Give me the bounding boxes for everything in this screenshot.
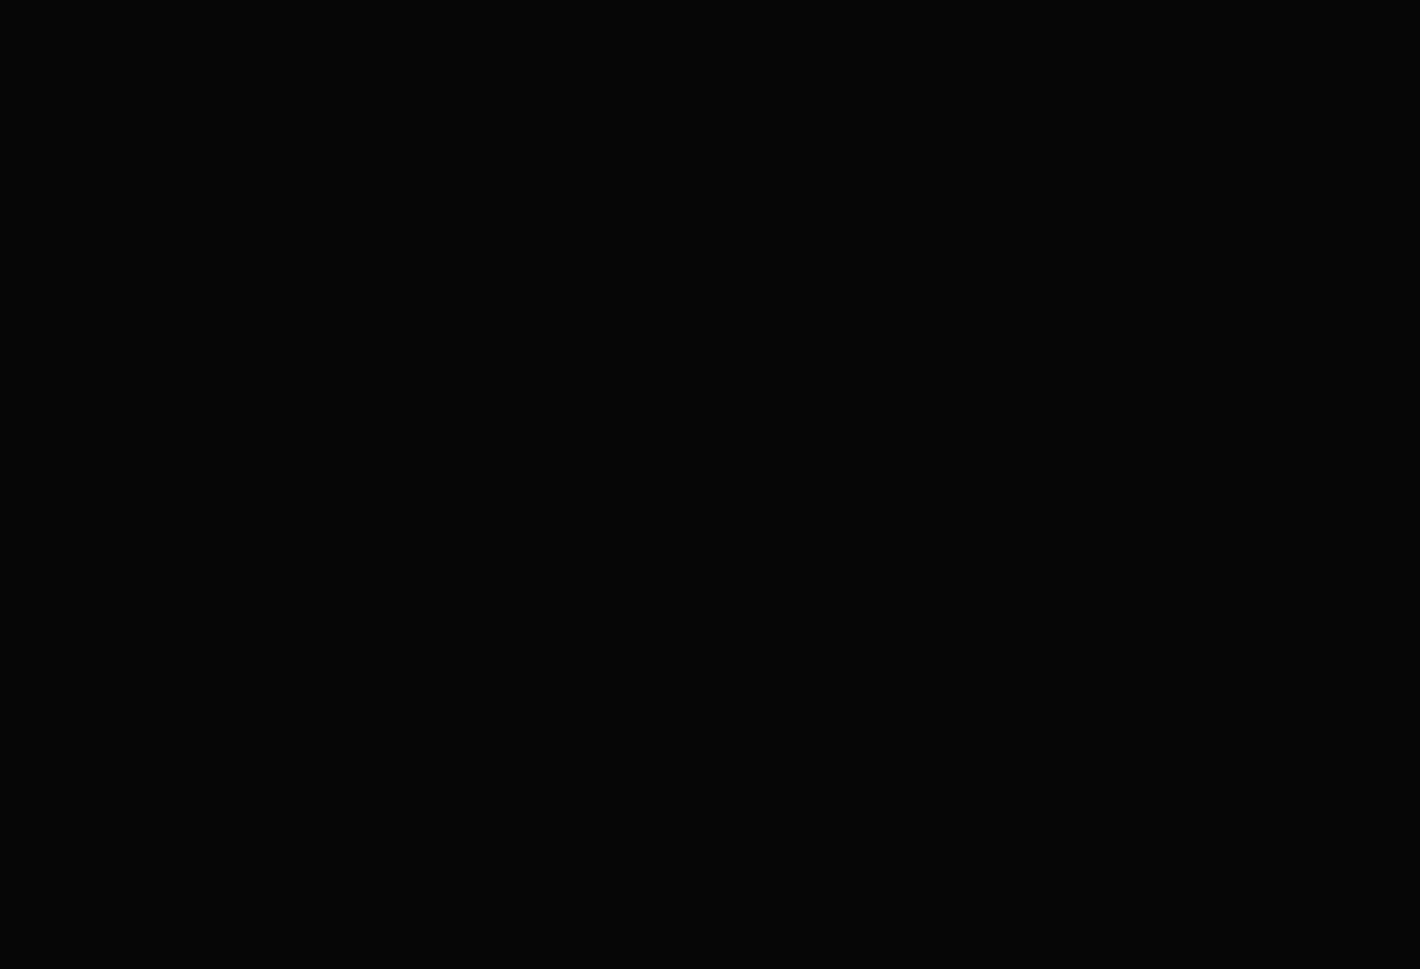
model-photo	[0, 0, 1420, 969]
site-model-svg	[0, 0, 1420, 969]
